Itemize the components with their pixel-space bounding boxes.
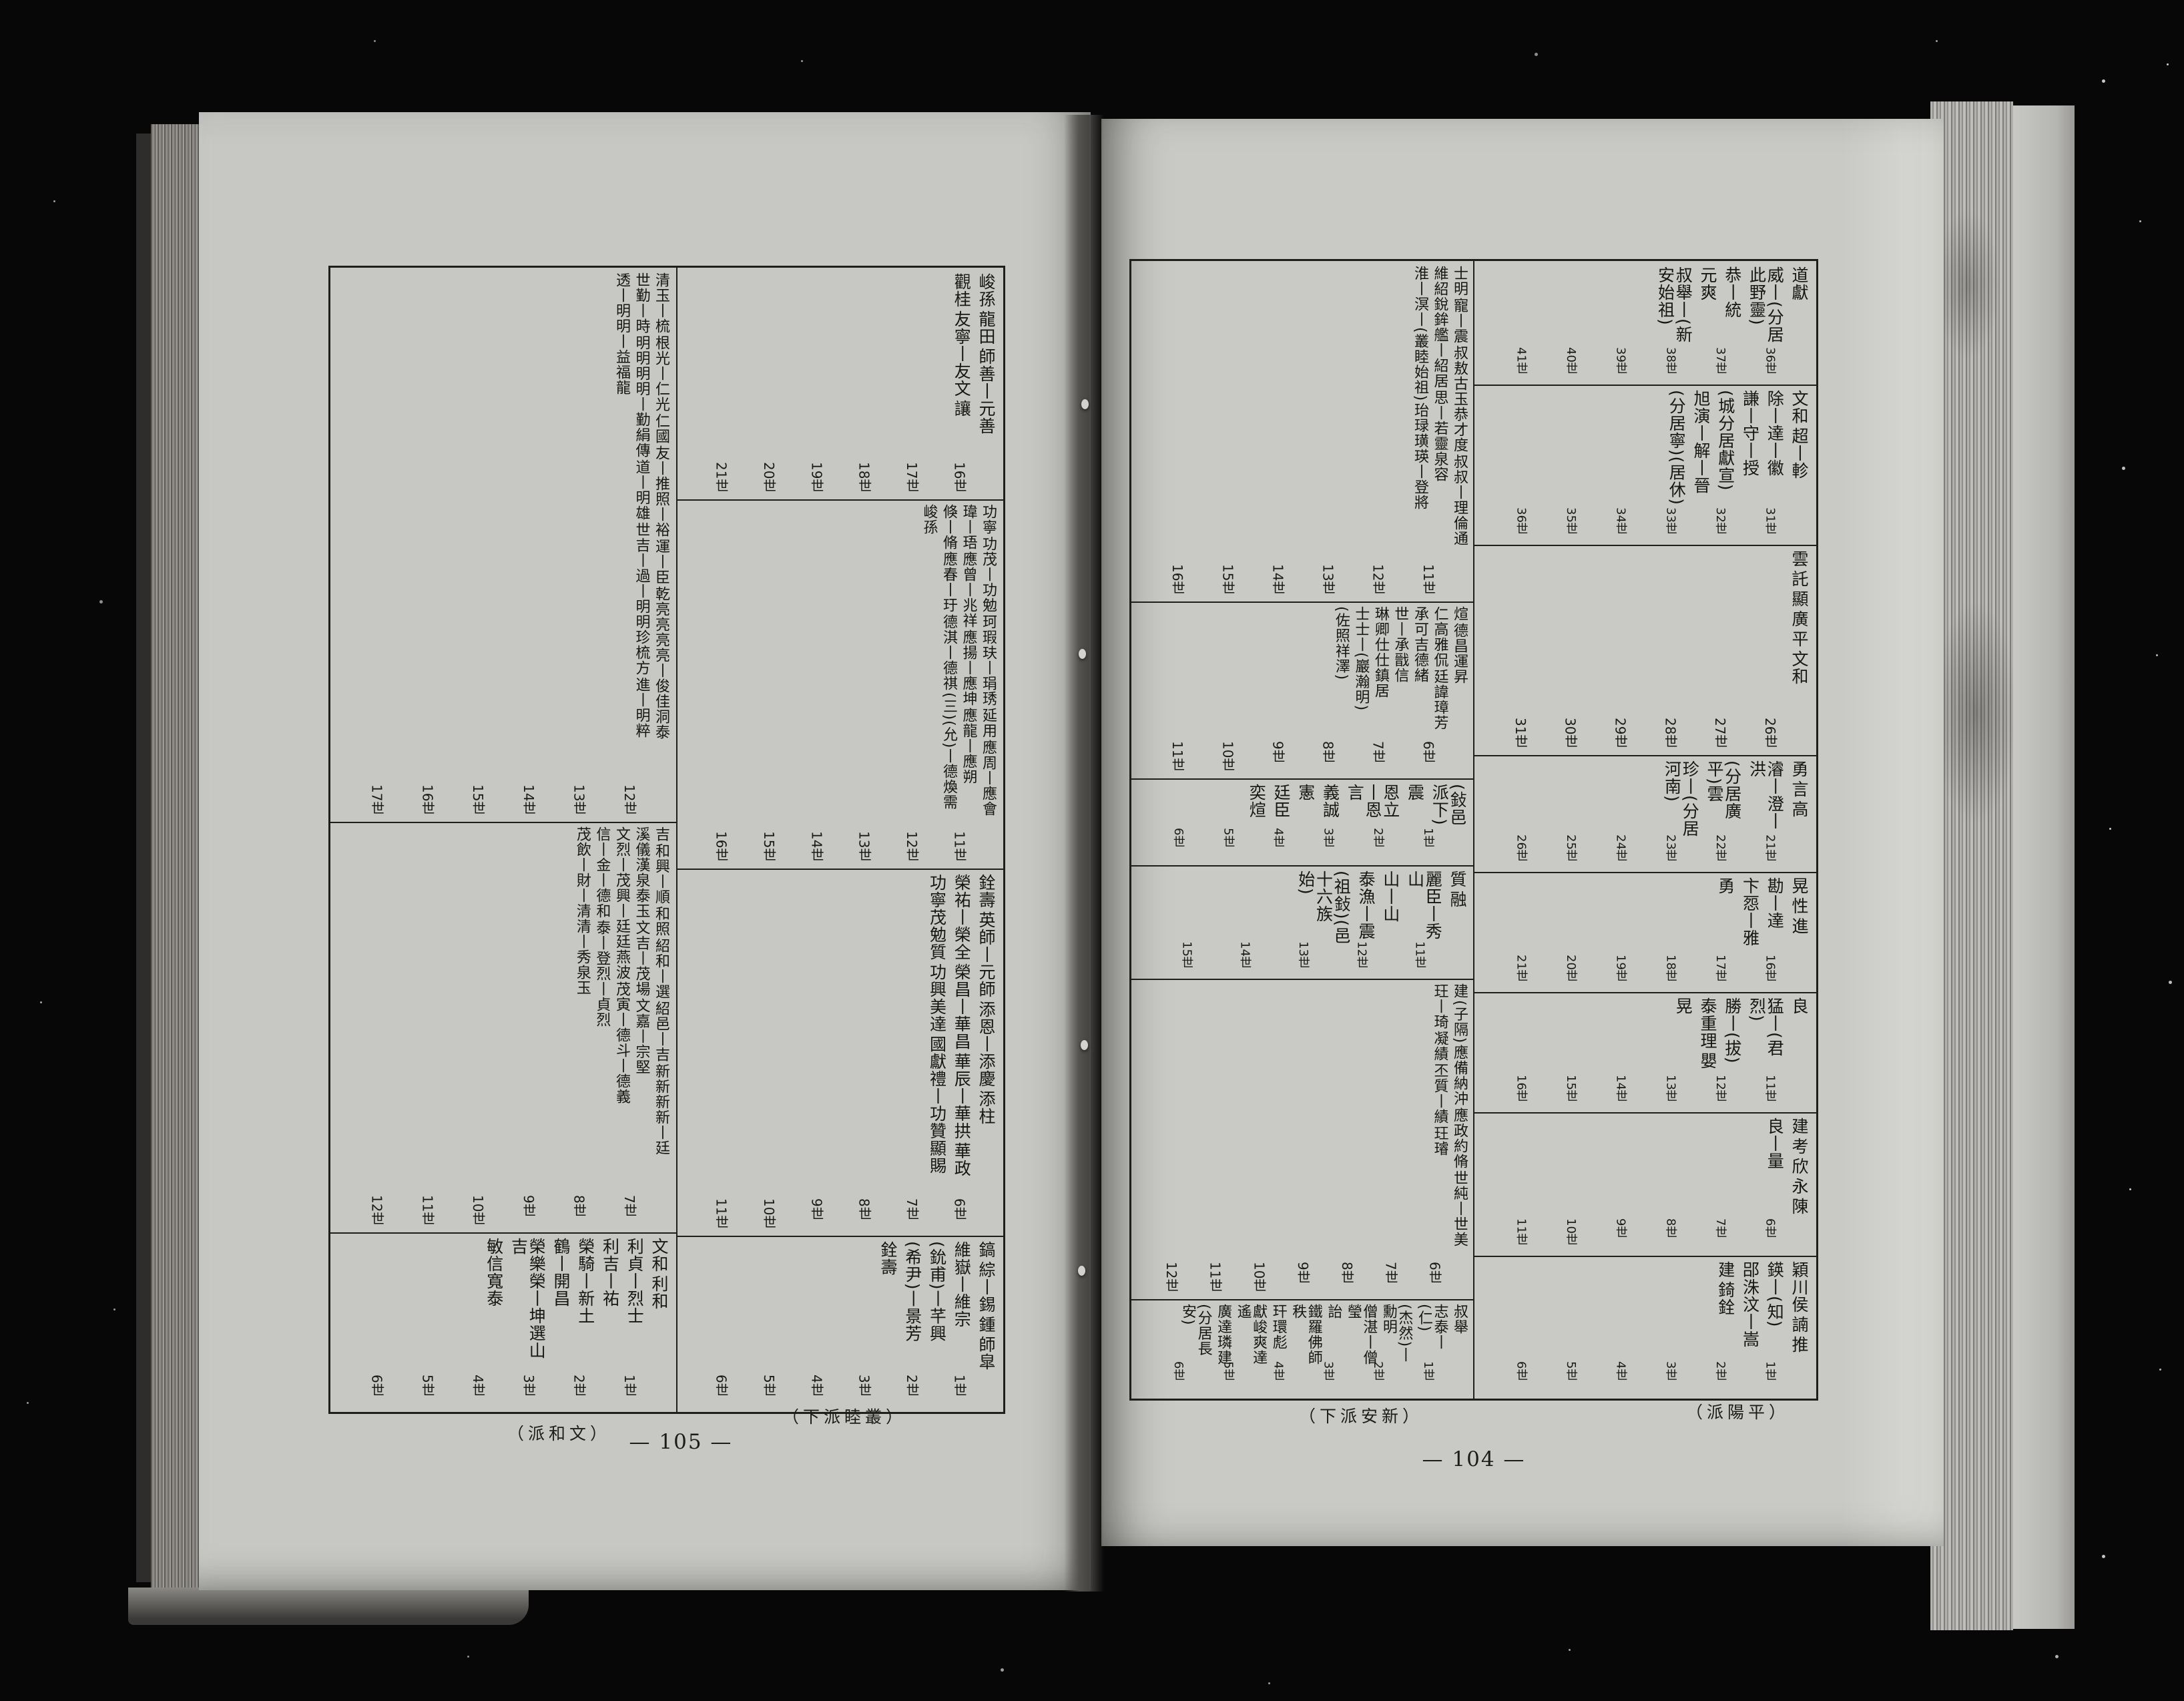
- generation-label: 10世: [1565, 1218, 1577, 1246]
- lineage-names: (鈙邑派下)震恩立丨恩言義誠憲廷臣奕煊: [1135, 782, 1469, 834]
- generation-label: 19世: [810, 462, 823, 492]
- lineage-column: 峻孫: [921, 504, 937, 535]
- lineage-column: 元爽: [1698, 266, 1716, 301]
- lineage-names: 鎬綜丨錫鍾師皐維嶽丨維宗(鈗甫)丨芊興(希尹)丨景芳銓壽: [681, 1240, 998, 1373]
- lineage-names: 叔舉志泰丨(仁)(杰然)丨勳明僧湛丨僧瑩詒鐵羅佛師秩玕環彪獻峻爽達遙廣達璘建(分…: [1135, 1303, 1469, 1368]
- band-right-gen36-41: 道獻威丨(分居此野靈)恭丨統元爽叔舉丨(新安始祖) 36世37世38世39世40…: [1474, 261, 1816, 386]
- generation-label: 15世: [1565, 1075, 1577, 1102]
- generation-labels: 1世2世3世4世5世6世: [1134, 1361, 1472, 1397]
- generation-label: 12世: [1165, 1262, 1178, 1292]
- generation-label: 10世: [1252, 1262, 1266, 1292]
- lineage-column: 麗臣丨秀山: [1406, 871, 1442, 947]
- generation-label: 13世: [1664, 1075, 1676, 1102]
- generation-label: 36世: [1763, 347, 1776, 375]
- lineage-column: 泰漁丨震: [1356, 871, 1374, 940]
- generation-label: 1世: [623, 1375, 636, 1397]
- generation-labels: 6世7世8世9世10世11世: [1134, 741, 1472, 777]
- generation-label: 26世: [1515, 834, 1527, 862]
- generation-label: 13世: [573, 784, 586, 814]
- generation-label: 36世: [1515, 507, 1527, 535]
- bottom-page-edge-stack: [128, 1588, 529, 1625]
- lineage-column: 文吉丨茂場: [633, 920, 649, 997]
- generation-label: 7世: [1372, 741, 1385, 763]
- lineage-column: 添柱: [977, 1090, 995, 1125]
- lineage-names: 建(子隔)應備納沖應政約脩世純丨世美玨丨琦凝績丕質丨績玨璿: [1135, 983, 1469, 1260]
- lineage-column: 威丨(分居此野靈): [1747, 266, 1784, 352]
- generation-label: 11世: [1171, 741, 1184, 771]
- lineage-column: 泰丨登烈丨貞烈: [594, 920, 610, 1027]
- lineage-column: 師善丨元善: [977, 348, 995, 435]
- lineage-column: 觀桂: [952, 273, 971, 308]
- generation-label: 11世: [953, 831, 967, 861]
- lineage-column: 讓: [952, 400, 971, 417]
- generation-label: 25世: [1565, 834, 1577, 862]
- lineage-column: 世吉丨過丨明明珍梳方: [633, 522, 649, 676]
- lineage-column: 廷臣: [1272, 784, 1290, 818]
- lineage-column: 文和: [1790, 650, 1808, 685]
- lineage-column: 溪儀漢泉泰玉: [633, 826, 649, 919]
- generation-label: 31世: [1514, 718, 1527, 748]
- lineage-column: 進: [1790, 917, 1808, 935]
- branch-note-congmu: （下派睦叢）: [782, 1404, 906, 1428]
- generation-label: 24世: [1615, 834, 1627, 862]
- generation-label: 4世: [810, 1375, 823, 1397]
- generation-label: 14世: [522, 784, 535, 814]
- lineage-column: 除丨達丨徽: [1765, 390, 1784, 477]
- lineage-column: 進丨明粹: [633, 677, 649, 738]
- generation-label: 21世: [1515, 955, 1527, 982]
- band-right-shuju-tree: 叔舉志泰丨(仁)(杰然)丨勳明僧湛丨僧瑩詒鐵羅佛師秩玕環彪獻峻爽達遙廣達璘建(分…: [1131, 1299, 1474, 1399]
- lineage-column: 玕環彪: [1270, 1304, 1286, 1350]
- generation-label: 21世: [714, 462, 728, 492]
- lineage-column: 世純丨世美: [1451, 1170, 1467, 1247]
- generation-labels: 6世7世8世9世10世11世: [680, 1198, 1001, 1234]
- lineage-column: 泰重理: [1698, 997, 1716, 1049]
- lineage-names: 煊德昌運昇仁高雅侃廷諱璋芳承可吉德緒世丨承戩信琳卿仕仕鎮居士士丨(巖瀚明)(佐照…: [1135, 605, 1469, 740]
- lineage-column: 平: [1790, 630, 1808, 648]
- generation-label: 2世: [1714, 1361, 1726, 1381]
- generation-label: 38世: [1664, 347, 1676, 375]
- generation-labels: 16世17世18世19世20世21世: [680, 462, 1001, 498]
- generation-label: 10世: [762, 1198, 776, 1228]
- lineage-column: 鎬: [977, 1241, 995, 1258]
- lineage-column: 文嘉丨宗堅: [633, 998, 649, 1075]
- band-right-gen16-21: 晃性進勘丨達卞㤪丨雅勇 16世17世18世19世20世21世: [1474, 872, 1816, 993]
- lineage-column: 運丨臣: [653, 539, 669, 585]
- band-right-shiming-tree: 士明寵丨震叔敖古玉恭才度叔叔丨理倫通維紹銳鉾艦丨紹居思丨若靈泉容淮丨溟丨(叢睦始…: [1131, 261, 1474, 603]
- generation-label: 4世: [1615, 1361, 1627, 1381]
- generation-label: 28世: [1663, 718, 1677, 748]
- generation-label: 11世: [1414, 941, 1426, 969]
- lineage-names: 峻孫龍田師善丨元善觀桂友寧丨友文讓: [681, 272, 998, 461]
- lineage-column: 添恩丨添慶: [977, 1001, 995, 1087]
- generation-label: 6世: [1422, 741, 1435, 763]
- generation-label: 7世: [1384, 1262, 1398, 1284]
- generation-label: 9世: [522, 1195, 535, 1217]
- lineage-column: 玨璿: [1432, 1126, 1448, 1156]
- generation-label: 13世: [858, 831, 871, 861]
- lineage-column: 勇: [1716, 877, 1734, 895]
- lineage-column: 新新新新丨廷: [653, 1063, 669, 1156]
- generation-label: 7世: [905, 1198, 918, 1220]
- branch-note-pingyang: （派陽平）: [1686, 1399, 1790, 1423]
- lineage-column: 和照: [653, 906, 669, 937]
- generation-label: 3世: [1322, 828, 1334, 847]
- generation-label: 2世: [1372, 1361, 1384, 1381]
- lineage-column: 志泰丨(仁): [1416, 1304, 1447, 1367]
- generation-labels: 11世12世13世14世15世: [1134, 941, 1472, 977]
- lineage-column: 凝績: [1432, 1031, 1448, 1061]
- lineage-column: 綜丨錫: [977, 1261, 995, 1313]
- back-cover-edge: [2013, 105, 2075, 1629]
- lineage-column: 透丨明明丨益福龍: [613, 272, 629, 395]
- lineage-column: 鐵羅佛師秩: [1290, 1304, 1322, 1367]
- lineage-column: 僧湛丨僧瑩: [1345, 1304, 1376, 1367]
- lineage-column: 淮丨溟丨(叢睦始祖): [1412, 266, 1428, 401]
- generation-label: 8世: [1340, 1262, 1354, 1284]
- lineage-column: 陳: [1790, 1198, 1808, 1215]
- generation-label: 1世: [1422, 828, 1434, 847]
- generation-label: 13世: [1322, 564, 1335, 594]
- generation-label: 30世: [1564, 718, 1577, 748]
- generation-label: 23世: [1664, 834, 1676, 862]
- lineage-column: 思丨若靈泉容: [1432, 390, 1448, 482]
- generation-label: 1世: [1422, 1361, 1434, 1381]
- lineage-column: 榮騎丨新土: [576, 1238, 594, 1324]
- band-right-gen1-6: 穎川侯諵推鍈丨(知)郘洙汶丨嵩建錡銓 1世2世3世4世5世6世: [1474, 1256, 1816, 1399]
- generation-label: 12世: [1355, 941, 1367, 969]
- lineage-names: 清玉丨梳根光丨仁光仁國友丨推照丨裕運丨臣乾亮亮亮亮丨俊佳洞泰世勤丨時明明明明丨勤…: [334, 272, 671, 783]
- lineage-column: 應龍丨應朔: [961, 708, 977, 784]
- lineage-column: 龍田: [977, 310, 995, 345]
- lineage-column: (希尹)丨景芳: [903, 1241, 921, 1343]
- generation-label: 14世: [1239, 941, 1251, 969]
- generation-label: 10世: [471, 1195, 485, 1225]
- band-right-gen11-15: 質融麗臣丨秀山山丨山泰漁丨震(祖鈙)(邑十六族始) 11世12世13世14世15…: [1131, 865, 1474, 980]
- band-right-gen21-26: 勇言高濬丨澄丨洪(分居廣平)雲珍丨(分居河南) 21世22世23世24世25世2…: [1474, 755, 1816, 873]
- lineage-column: 寵丨震: [1451, 298, 1467, 344]
- generation-label: 9世: [1296, 1262, 1310, 1284]
- lineage-column: 雲: [1790, 550, 1808, 567]
- generation-label: 11世: [1515, 1218, 1527, 1246]
- lineage-column: 倏丨脩: [940, 504, 957, 550]
- lineage-column: (分居廣平)雲: [1705, 760, 1741, 840]
- generation-label: 6世: [1515, 1361, 1527, 1381]
- lineage-column: 珂瑕玞丨琄琇: [980, 614, 996, 706]
- lineage-column: 叔叔丨理倫通: [1451, 454, 1467, 546]
- lineage-names: 晃性進勘丨達卞㤪丨雅勇: [1478, 876, 1811, 961]
- band-left-gen1-6: 鎬綜丨錫鍾師皐維嶽丨維宗(鈗甫)丨芊興(希尹)丨景芳銓壽 1世2世3世4世5世6…: [677, 1236, 1003, 1412]
- generation-label: 15世: [1221, 564, 1234, 594]
- lineage-column: 仁高雅侃: [1432, 606, 1448, 668]
- lineage-column: 諵: [1790, 1316, 1808, 1333]
- lineage-column: 託: [1790, 570, 1808, 587]
- lineage-names: 建考欣永陳良丨量: [1478, 1116, 1811, 1225]
- band-right-gen11-16: 良猛丨(君烈)勝丨(拔)泰重理嬰晃 11世12世13世14世15世16世: [1474, 992, 1816, 1114]
- lineage-column: 融: [1448, 891, 1466, 908]
- lineage-column: 文和: [1790, 390, 1808, 425]
- lineage-names: 吉和興丨順和照紹和丨選紹邑丨吉新新新新丨廷溪儀漢泉泰玉文吉丨茂場文嘉丨宗堅文烈丨…: [334, 826, 671, 1194]
- lineage-column: 推: [1790, 1336, 1808, 1353]
- lineage-column: 茂飲丨財丨清清丨秀泉玉: [574, 826, 590, 995]
- lineage-column: 叔敖古玉恭才度: [1451, 345, 1467, 453]
- lineage-column: 功興美達: [928, 963, 946, 1033]
- lineage-names: 士明寵丨震叔敖古玉恭才度叔叔丨理倫通維紹銳鉾艦丨紹居思丨若靈泉容淮丨溟丨(叢睦始…: [1135, 265, 1469, 563]
- lineage-column: 煊: [1451, 606, 1467, 622]
- generation-labels: 36世37世38世39世40世41世: [1477, 347, 1814, 383]
- generation-label: 12世: [1372, 564, 1385, 594]
- lineage-names: 良猛丨(君烈)勝丨(拔)泰重理嬰晃: [1478, 996, 1811, 1081]
- lineage-names: 銓壽英師丨元師添恩丨添慶添柱榮祐丨榮全榮昌丨華昌華辰丨華拱華政功寧茂勉質功興美達…: [681, 873, 998, 1197]
- generation-label: 32世: [1714, 507, 1726, 535]
- lineage-column: 謙丨守丨授: [1741, 390, 1759, 477]
- generation-label: 15世: [762, 831, 776, 861]
- generation-label: 11世: [714, 1198, 728, 1228]
- band-right-qinyi-branch: (鈙邑派下)震恩立丨恩言義誠憲廷臣奕煊 1世2世3世4世5世6世: [1131, 778, 1474, 867]
- generation-label: 37世: [1714, 347, 1726, 375]
- generation-label: 6世: [1172, 828, 1184, 847]
- generation-label: 33世: [1664, 507, 1676, 535]
- lineage-column: 榮昌丨華昌: [952, 963, 971, 1050]
- generation-labels: 16世17世18世19世20世21世: [1477, 955, 1814, 991]
- generation-label: 18世: [858, 462, 871, 492]
- lineage-column: 應政約脩: [1451, 1108, 1467, 1169]
- generation-label: 6世: [1428, 1262, 1441, 1284]
- lineage-column: 道獻: [1790, 266, 1808, 301]
- lineage-column: 承可吉德緒: [1412, 606, 1428, 683]
- binding-stitch: [1078, 1266, 1085, 1276]
- lineage-column: 叔舉: [1451, 1304, 1467, 1334]
- lineage-column: 義誠: [1321, 784, 1339, 818]
- generation-label: 6世: [1763, 1218, 1776, 1238]
- lineage-column: 高: [1790, 800, 1808, 818]
- lineage-column: 利和: [649, 1275, 667, 1310]
- band-left-gen6-11: 銓壽英師丨元師添恩丨添慶添柱榮祐丨榮全榮昌丨華昌華辰丨華拱華政功寧茂勉質功興美達…: [677, 869, 1003, 1237]
- band-right-xuan-tree: 煊德昌運昇仁高雅侃廷諱璋芳承可吉德緒世丨承戩信琳卿仕仕鎮居士士丨(巖瀚明)(佐照…: [1131, 601, 1474, 780]
- generation-labels: 1世2世3世4世5世6世: [333, 1375, 673, 1411]
- lineage-column: 震: [1406, 784, 1424, 801]
- generation-label: 6世: [370, 1375, 384, 1397]
- lineage-column: 性: [1790, 897, 1808, 915]
- lineage-column: 瑋丨珸: [961, 504, 977, 550]
- lineage-column: 維紹銳鉾艦丨紹居: [1432, 266, 1448, 389]
- generation-labels: 31世32世33世34世35世36世: [1477, 507, 1814, 543]
- generation-label: 8世: [1664, 1218, 1676, 1238]
- lineage-column: 應曾丨兆祥: [961, 551, 977, 628]
- lineage-column: 德淇丨德祺: [940, 614, 957, 691]
- generation-label: 4世: [471, 1375, 485, 1397]
- lineage-column: 功寧: [980, 504, 996, 535]
- band-left-gen11-16: 功寧功茂丨功勉珂瑕玞丨琄琇延用應周丨應會瑋丨珸應曾丨兆祥應揚丨應坤應龍丨應朔倏丨…: [677, 499, 1003, 870]
- binding-stitch: [1081, 1040, 1088, 1050]
- generation-label: 3世: [1664, 1361, 1676, 1381]
- lineage-column: 建: [1790, 1118, 1808, 1135]
- generation-label: 5世: [1222, 1361, 1234, 1381]
- generation-labels: 6世7世8世9世10世11世12世: [1134, 1262, 1472, 1298]
- generation-label: 20世: [1565, 955, 1577, 982]
- generation-label: 9世: [810, 1198, 823, 1220]
- lineage-names: 穎川侯諵推鍈丨(知)郘洙汶丨嵩建錡銓: [1478, 1260, 1811, 1368]
- lineage-column: 利吉丨祐: [601, 1238, 619, 1307]
- branch-note-xinan: （下派安新）: [1299, 1403, 1423, 1427]
- lineage-column: 道丨明雄: [633, 459, 649, 521]
- lineage-column: 山丨山: [1381, 871, 1399, 923]
- lineage-column: 和興丨順: [653, 843, 669, 905]
- generation-label: 9世: [1615, 1218, 1627, 1238]
- generation-label: 31世: [1763, 507, 1776, 535]
- lineage-column: 敏信寬泰: [485, 1238, 503, 1307]
- lineage-column: 維嶽丨維宗: [952, 1241, 971, 1328]
- generation-label: 11世: [1763, 1075, 1776, 1102]
- generation-label: 7世: [623, 1195, 636, 1217]
- generation-label: 8世: [573, 1195, 586, 1217]
- generation-label: 16世: [1171, 564, 1184, 594]
- lineage-column: 晃: [1790, 877, 1808, 895]
- lineage-names: 功寧功茂丨功勉珂瑕玞丨琄琇延用應周丨應會瑋丨珸應曾丨兆祥應揚丨應坤應龍丨應朔倏丨…: [681, 503, 998, 830]
- generation-label: 11世: [1422, 564, 1435, 594]
- generation-label: 7世: [1714, 1218, 1726, 1238]
- generation-label: 35世: [1565, 507, 1577, 535]
- generation-label: 16世: [953, 462, 967, 492]
- lineage-column: 鶴丨開昌: [551, 1238, 569, 1307]
- lineage-column: 超丨軫: [1790, 427, 1808, 479]
- generation-label: 11世: [1209, 1262, 1222, 1292]
- lineage-column: 世勤丨時: [633, 272, 649, 334]
- page-number-104: — 104 —: [1410, 1447, 1537, 1471]
- lineage-column: 友丨推照丨裕: [653, 445, 669, 537]
- generation-label: 12世: [623, 784, 636, 814]
- lineage-column: 文烈丨茂興丨廷廷燕波: [613, 826, 629, 980]
- generation-labels: 6世7世8世9世10世11世: [1477, 1218, 1814, 1254]
- generation-label: 12世: [1714, 1075, 1726, 1102]
- lineage-column: 應周丨應會: [980, 740, 996, 816]
- generation-label: 14世: [810, 831, 823, 861]
- band-left-gen7-12-tree: 吉和興丨順和照紹和丨選紹邑丨吉新新新新丨廷溪儀漢泉泰玉文吉丨茂場文嘉丨宗堅文烈丨…: [330, 822, 676, 1234]
- generation-label: 39世: [1615, 347, 1627, 375]
- lineage-column: 應備納沖: [1451, 1045, 1467, 1106]
- band-right-gen31-36: 文和超丨軫除丨達丨徽謙丨守丨授(城分居獻宣)旭演丨解丨晉(分居寧)(居休) 31…: [1474, 385, 1816, 546]
- generation-label: 9世: [1271, 741, 1284, 763]
- lineage-names: 質融麗臣丨秀山山丨山泰漁丨震(祖鈙)(邑十六族始): [1135, 869, 1469, 948]
- lineage-column: (子隔): [1451, 1000, 1467, 1043]
- lineage-column: 建: [1716, 1261, 1734, 1278]
- lineage-names: 道獻威丨(分居此野靈)恭丨統元爽叔舉丨(新安始祖): [1478, 265, 1811, 354]
- lineage-column: 應春丨玗: [940, 551, 957, 613]
- genealogy-chart-left: 峻孫龍田師善丨元善觀桂友寧丨友文讓 16世17世18世19世20世21世 功寧功…: [328, 266, 1005, 1414]
- lineage-column: 乾亮亮亮亮丨俊佳洞泰: [653, 586, 669, 740]
- generation-label: 21世: [1763, 834, 1776, 862]
- lineage-column: 紹和丨選: [653, 938, 669, 999]
- generation-label: 2世: [905, 1375, 918, 1397]
- lineage-column: 欣: [1790, 1158, 1808, 1175]
- generation-label: 4世: [1272, 828, 1284, 847]
- lineage-column: 考: [1790, 1138, 1808, 1155]
- lineage-names: 文和利和利貞丨烈士利吉丨祐榮騎丨新土鶴丨開昌榮樂榮丨坤選山吉敏信寬泰: [334, 1236, 671, 1373]
- generation-label: 29世: [1614, 718, 1627, 748]
- lineage-column: 文和: [649, 1238, 667, 1272]
- generation-label: 16世: [1763, 955, 1776, 982]
- generation-label: 1世: [953, 1375, 967, 1397]
- generation-labels: 12世13世14世15世16世17世: [333, 784, 673, 820]
- generation-label: 15世: [1180, 941, 1192, 969]
- lineage-column: 丕質丨績: [1432, 1063, 1448, 1124]
- dust-specks: [0, 0, 2, 2]
- generation-label: 3世: [858, 1375, 871, 1397]
- lineage-column: 勘丨達: [1765, 877, 1784, 929]
- lineage-column: 廣達璘建: [1215, 1304, 1232, 1365]
- lineage-column: 獻峻爽達遙: [1235, 1304, 1266, 1367]
- generation-label: 17世: [905, 462, 918, 492]
- band-right-ying-stack: 建(子隔)應備納沖應政約脩世純丨世美玨丨琦凝績丕質丨績玨璿 6世7世8世9世10…: [1131, 979, 1474, 1300]
- generation-label: 2世: [573, 1375, 586, 1397]
- band-left-gen1-6-tree: 文和利和利貞丨烈士利吉丨祐榮騎丨新土鶴丨開昌榮樂榮丨坤選山吉敏信寬泰 1世2世3…: [330, 1232, 676, 1412]
- lineage-column: 世丨承戩信: [1392, 606, 1408, 683]
- lineage-column: (杰然)丨勳明: [1380, 1304, 1412, 1367]
- lineage-names: 雲託顯廣平文和: [1478, 549, 1811, 716]
- generation-label: 3世: [1322, 1361, 1334, 1381]
- binding-stitch: [1081, 399, 1089, 409]
- lineage-column: 詒: [1326, 1304, 1342, 1319]
- generation-label: 18世: [1664, 955, 1676, 982]
- lineage-column: 言: [1790, 780, 1808, 798]
- lineage-column: 銓壽: [977, 874, 995, 909]
- lineage-column: 珍丨(分居河南): [1663, 760, 1699, 840]
- lineage-column: 濬丨澄丨洪: [1747, 760, 1784, 840]
- generation-labels: 7世8世9世10世11世12世: [333, 1195, 673, 1231]
- lineage-names: 勇言高濬丨澄丨洪(分居廣平)雲珍丨(分居河南): [1478, 759, 1811, 841]
- book-spine-shadow: [136, 134, 151, 1582]
- lineage-column: 嬰: [1698, 1052, 1716, 1069]
- generation-labels: 26世27世28世29世30世31世: [1477, 718, 1814, 754]
- lineage-column: 華政: [952, 1142, 971, 1177]
- lineage-column: 卞㤪丨雅: [1741, 877, 1759, 947]
- lineage-column: 華辰丨華拱: [952, 1053, 971, 1140]
- lineage-column: 珆琭璜瑛丨登將: [1412, 403, 1428, 510]
- lineage-column: 紹邑丨吉: [653, 1001, 669, 1062]
- lineage-column: 德昌運昇: [1451, 623, 1467, 684]
- generation-labels: 1世2世3世4世5世6世: [1134, 828, 1472, 864]
- lineage-column: (三)(允)丨德煥需: [940, 692, 957, 810]
- generation-label: 13世: [1297, 941, 1309, 969]
- generation-label: 5世: [1222, 828, 1234, 847]
- generation-label: 5世: [1565, 1361, 1577, 1381]
- page-number-105: — 105 —: [617, 1430, 744, 1454]
- lineage-column: 師皐: [977, 1336, 995, 1371]
- lineage-column: 明明明明丨勤絹傳: [633, 335, 649, 458]
- lineage-column: 旭演丨解丨晉: [1691, 390, 1709, 494]
- lineage-column: (城分居獻宣): [1716, 390, 1734, 491]
- lineage-column: 恭丨統: [1723, 266, 1741, 318]
- lineage-column: 廷諱璋芳: [1432, 669, 1448, 730]
- lineage-column: (分居寧)(居休): [1667, 390, 1685, 505]
- lineage-column: 良: [1790, 997, 1808, 1015]
- lineage-column: 功寧茂勉質: [928, 874, 946, 961]
- generation-label: 17世: [1714, 955, 1726, 982]
- generation-label: 12世: [370, 1195, 384, 1225]
- generation-label: 16世: [421, 784, 434, 814]
- lineage-column: 建: [1451, 983, 1467, 999]
- generation-label: 41世: [1515, 347, 1527, 375]
- lineage-column: 峻孫: [977, 273, 995, 308]
- generation-label: 40世: [1565, 347, 1577, 375]
- band-left-gen16-21: 峻孫龍田師善丨元善觀桂友寧丨友文讓 16世17世18世19世20世21世: [677, 268, 1003, 501]
- lineage-column: 吉: [653, 826, 669, 842]
- lineage-column: 永: [1790, 1178, 1808, 1195]
- generation-labels: 11世12世13世14世15世16世: [1134, 564, 1472, 600]
- generation-label: 1世: [1763, 1361, 1776, 1381]
- lineage-column: 良丨量: [1765, 1118, 1784, 1170]
- generation-label: 26世: [1763, 718, 1777, 748]
